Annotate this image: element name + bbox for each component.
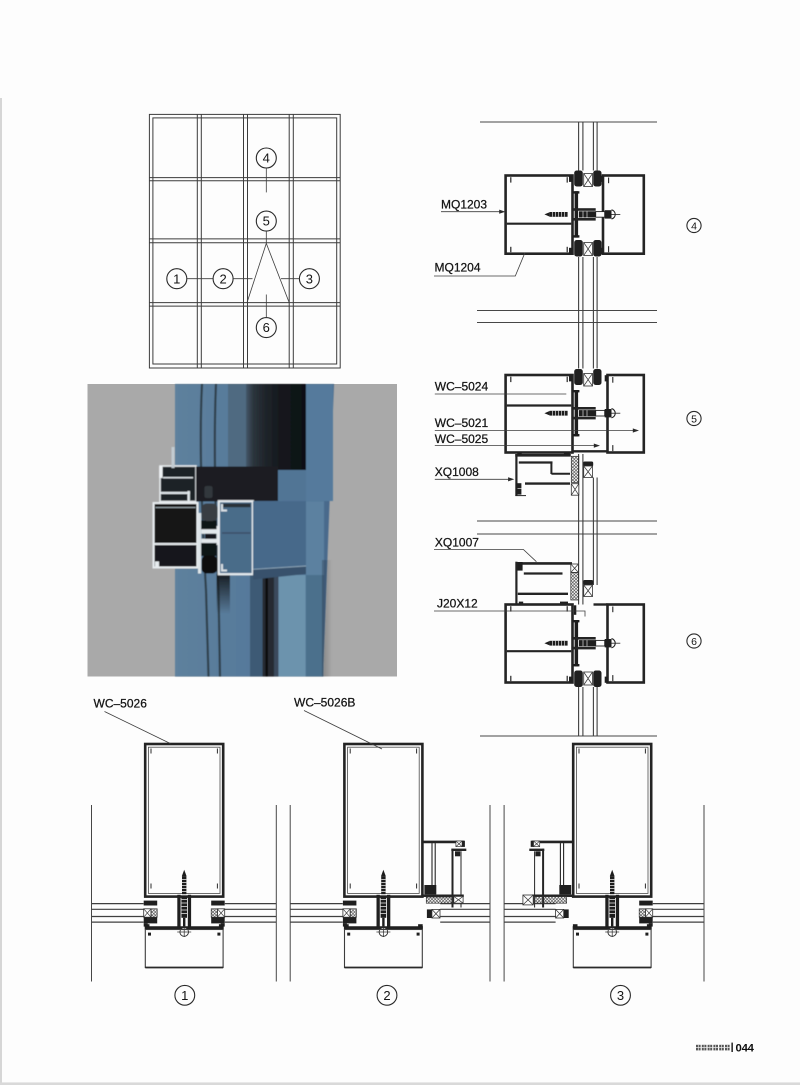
svg-text:4: 4 bbox=[263, 151, 270, 166]
svg-text:WC–5026B: WC–5026B bbox=[294, 696, 355, 710]
svg-text:044: 044 bbox=[736, 1043, 755, 1055]
svg-text:6: 6 bbox=[263, 320, 270, 335]
svg-text:J20X12: J20X12 bbox=[437, 597, 478, 611]
svg-text:WC–5024: WC–5024 bbox=[435, 380, 489, 394]
svg-text:6: 6 bbox=[691, 636, 697, 648]
svg-text:WC–5026: WC–5026 bbox=[94, 697, 148, 711]
svg-text:5: 5 bbox=[263, 214, 270, 229]
svg-text:WC–5025: WC–5025 bbox=[435, 432, 489, 446]
svg-text:1: 1 bbox=[173, 271, 180, 286]
svg-text:3: 3 bbox=[306, 271, 313, 286]
svg-text:XQ1007: XQ1007 bbox=[435, 536, 479, 550]
svg-text:5: 5 bbox=[691, 413, 697, 425]
svg-text:2: 2 bbox=[383, 988, 390, 1003]
svg-text:XQ1008: XQ1008 bbox=[435, 465, 479, 479]
svg-text:4: 4 bbox=[691, 220, 697, 232]
svg-text:3: 3 bbox=[617, 988, 624, 1003]
svg-text:2: 2 bbox=[219, 271, 226, 286]
svg-text:MQ1204: MQ1204 bbox=[435, 260, 481, 274]
svg-text:WC–5021: WC–5021 bbox=[435, 416, 489, 430]
svg-text:1: 1 bbox=[181, 988, 188, 1003]
svg-text:MQ1203: MQ1203 bbox=[441, 198, 487, 212]
